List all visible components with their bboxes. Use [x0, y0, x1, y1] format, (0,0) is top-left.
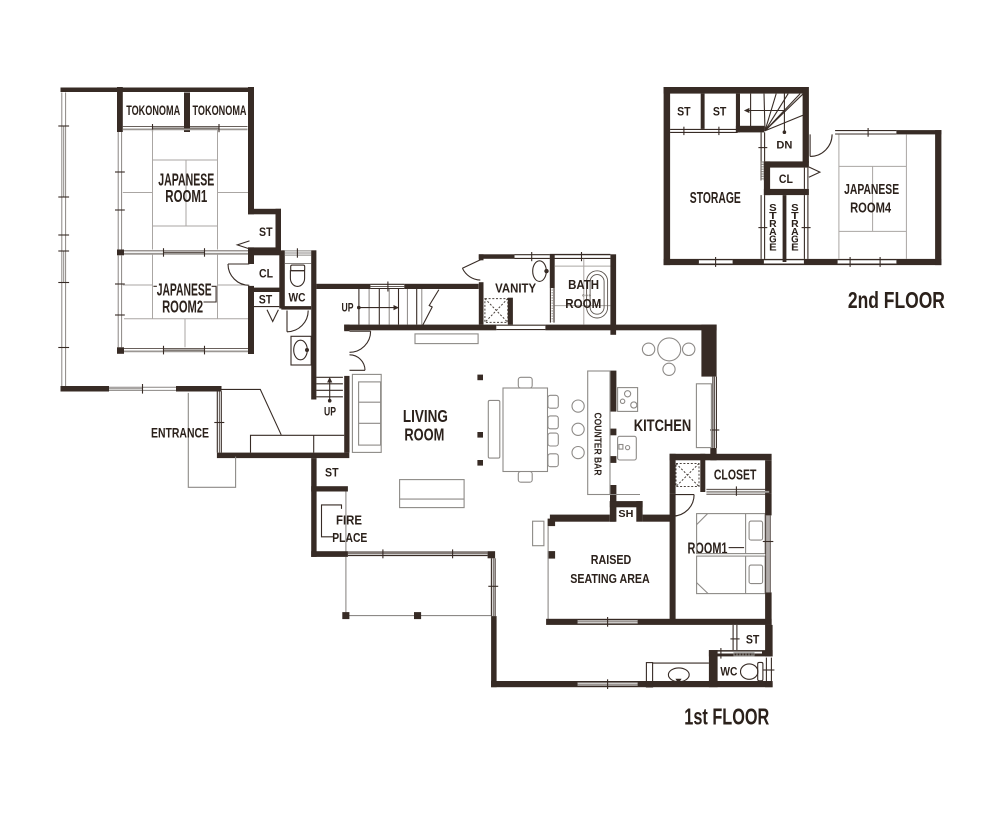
svg-text:2nd FLOOR: 2nd FLOOR: [848, 287, 945, 313]
svg-text:ROOM: ROOM: [565, 297, 601, 311]
svg-text:PLACE: PLACE: [332, 530, 367, 545]
svg-text:BATH: BATH: [568, 278, 599, 292]
svg-text:JAPANESE: JAPANESE: [844, 182, 899, 198]
svg-text:ST: ST: [677, 104, 691, 118]
svg-text:STORAGE: STORAGE: [690, 190, 741, 207]
svg-text:VANITY: VANITY: [495, 282, 537, 296]
svg-text:ST: ST: [259, 225, 273, 239]
svg-text:ST: ST: [259, 293, 273, 307]
svg-text:ST: ST: [746, 633, 760, 647]
svg-text:ENTRANCE: ENTRANCE: [151, 425, 209, 441]
svg-text:ST: ST: [325, 465, 339, 479]
svg-text:E: E: [791, 243, 799, 254]
svg-text:CL: CL: [259, 267, 273, 281]
svg-text:TOKONOMA: TOKONOMA: [193, 103, 247, 118]
svg-text:UP: UP: [324, 406, 336, 418]
svg-text:COUNTER BAR: COUNTER BAR: [592, 413, 604, 476]
svg-text:1st FLOOR: 1st FLOOR: [684, 704, 769, 730]
svg-text:FIRE: FIRE: [336, 512, 362, 527]
svg-text:KITCHEN: KITCHEN: [634, 416, 692, 435]
svg-text:CL: CL: [779, 172, 793, 186]
svg-text:LIVING: LIVING: [403, 406, 448, 426]
svg-text:SEATING AREA: SEATING AREA: [570, 571, 650, 586]
svg-text:ST: ST: [713, 104, 727, 118]
svg-text:ROOM: ROOM: [404, 425, 444, 445]
svg-text:SH: SH: [618, 508, 633, 520]
svg-text:ROOM2: ROOM2: [162, 296, 203, 316]
svg-text:RAISED: RAISED: [591, 552, 632, 567]
svg-text:WC: WC: [289, 290, 306, 304]
svg-text:ROOM4: ROOM4: [850, 201, 891, 217]
svg-text:DN: DN: [776, 139, 792, 151]
svg-text:CLOSET: CLOSET: [714, 468, 757, 484]
svg-text:E: E: [769, 243, 777, 254]
svg-text:TOKONOMA: TOKONOMA: [126, 103, 180, 118]
svg-text:WC: WC: [720, 665, 737, 679]
svg-text:ROOM1: ROOM1: [688, 541, 728, 558]
svg-text:ROOM1: ROOM1: [165, 186, 207, 206]
svg-text:UP: UP: [342, 302, 354, 314]
